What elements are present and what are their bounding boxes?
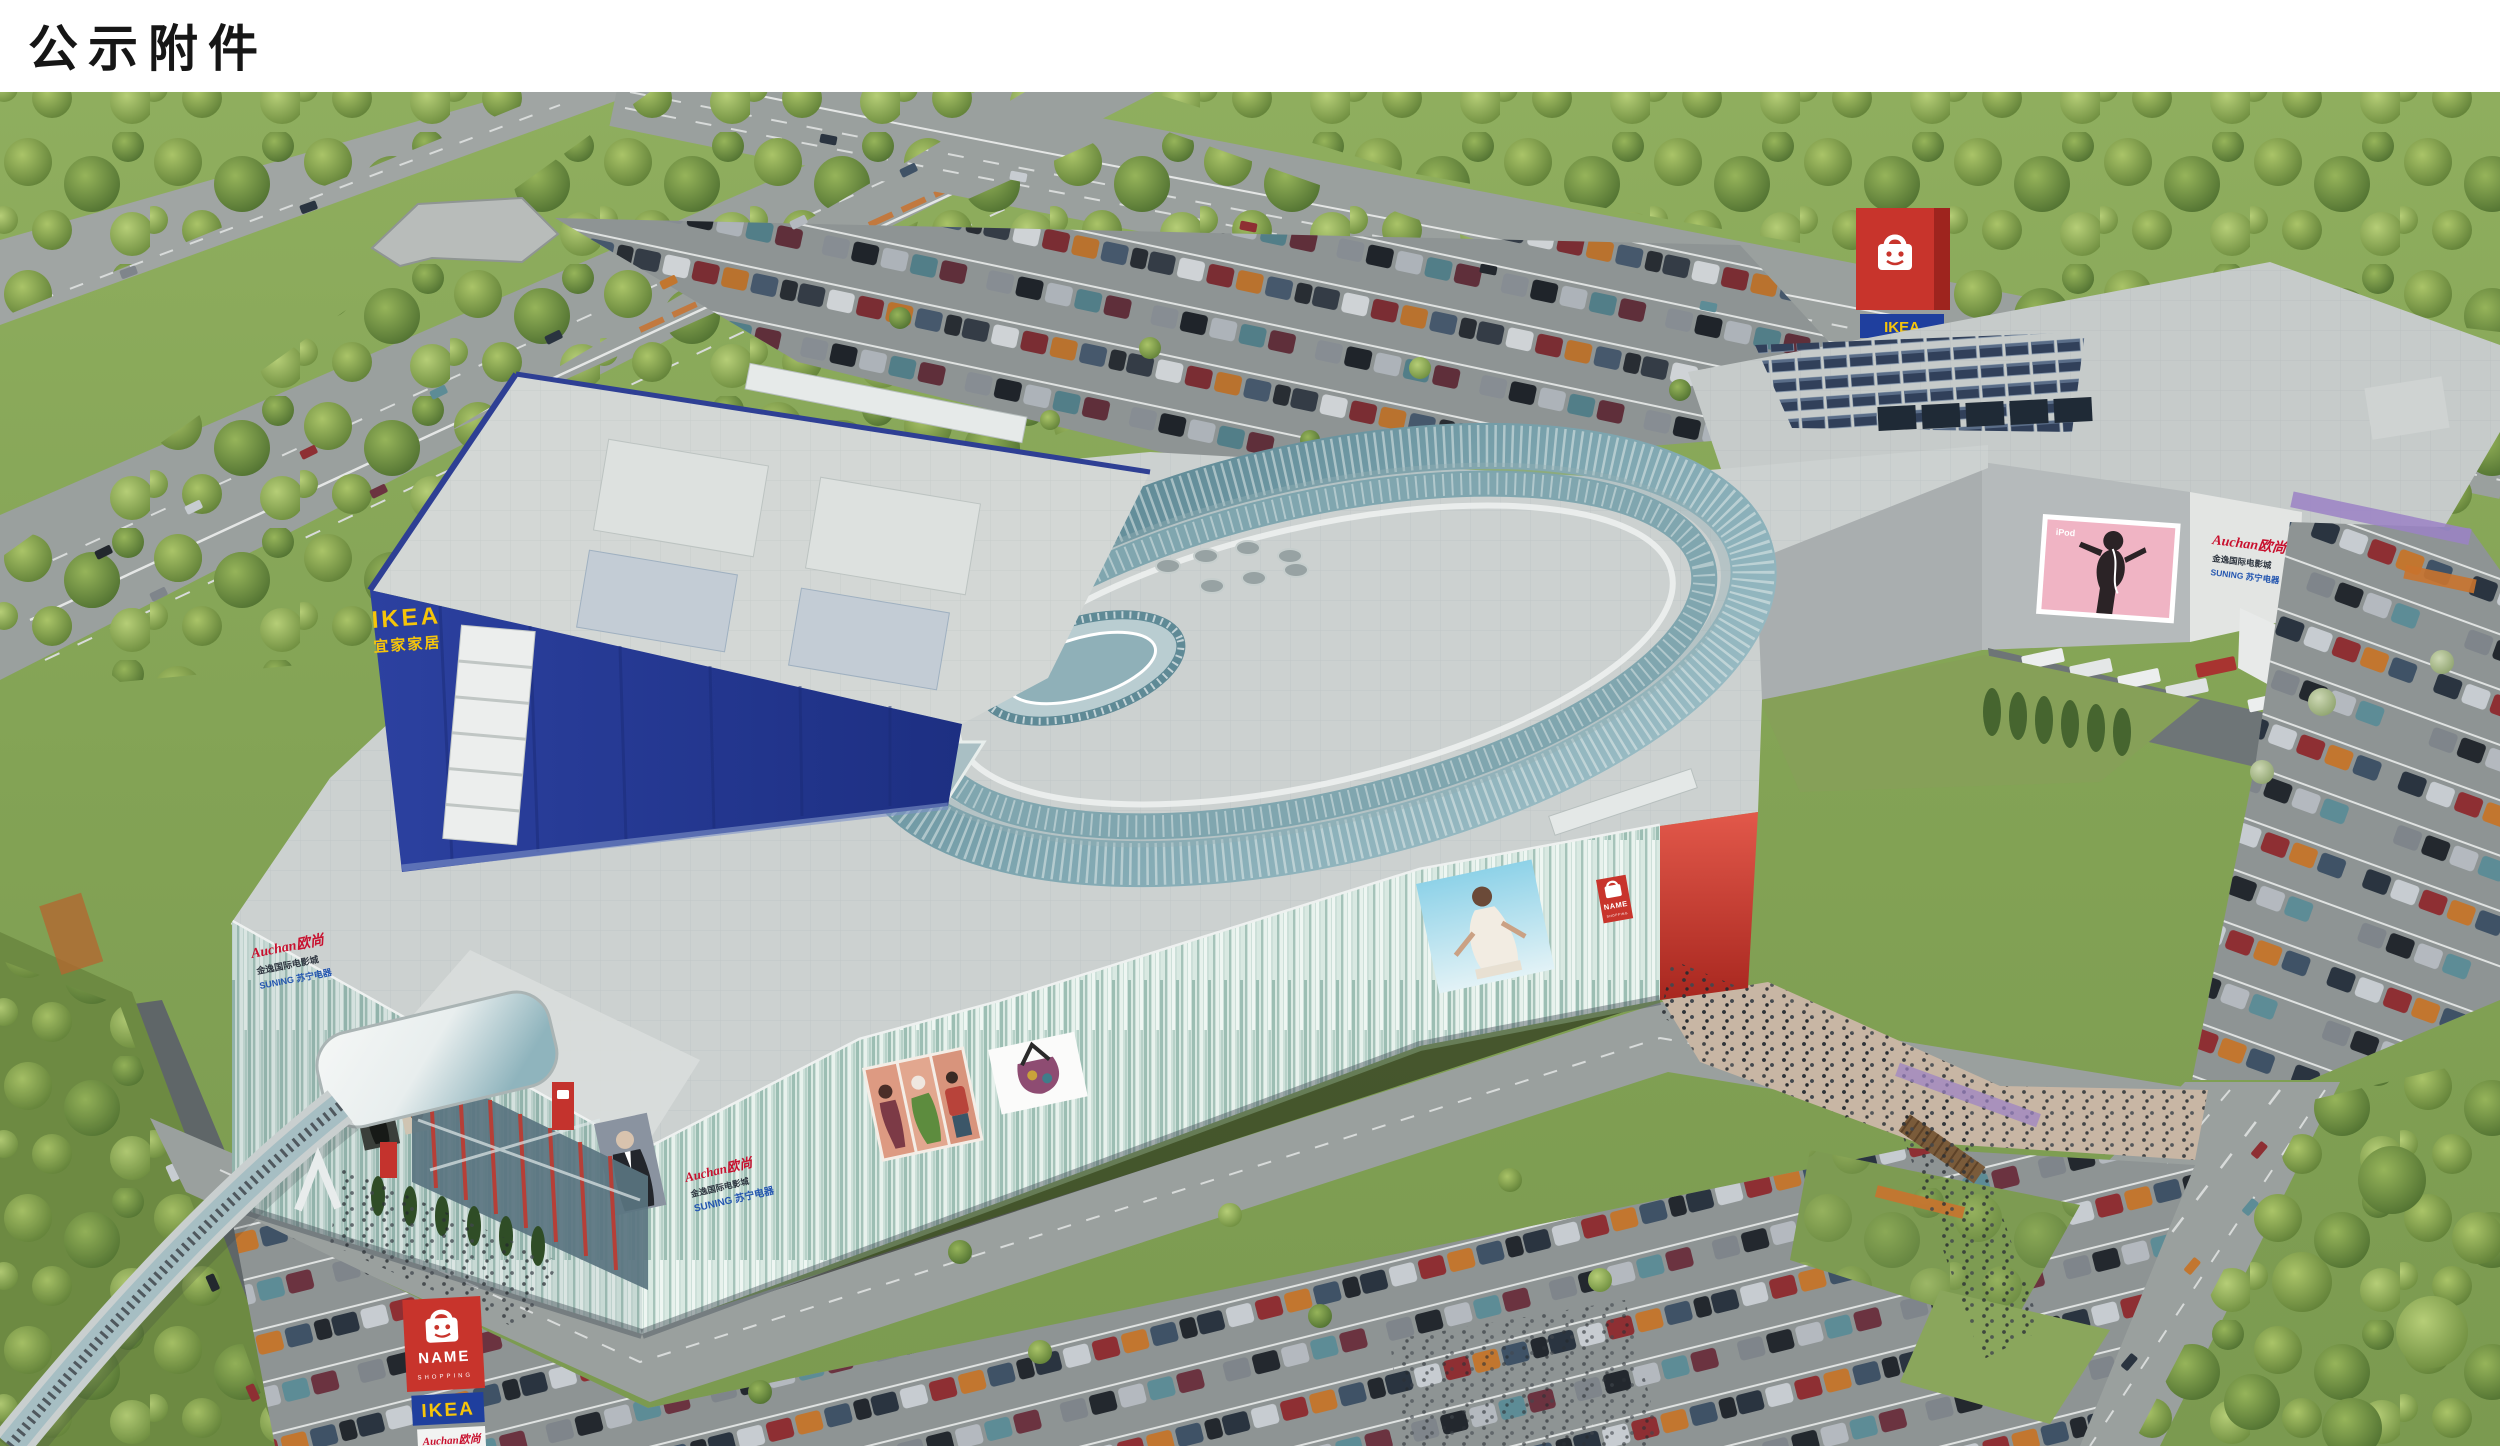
entrance-red-banner bbox=[380, 1142, 397, 1178]
ipod-label: iPod bbox=[2055, 527, 2075, 538]
aerial-rendering: IKEA Auchan欧尚 金逸国际电影城 苏宁电器 iPod Auchan欧尚… bbox=[0, 0, 2500, 1446]
page-title: 公示附件 bbox=[28, 21, 268, 77]
ikea-sign-en: IKEA bbox=[371, 602, 442, 634]
entrance-logo-banner bbox=[552, 1082, 574, 1130]
billboard-fashion-model bbox=[1416, 859, 1555, 993]
header-bar: 公示附件 bbox=[0, 0, 2500, 92]
billboard-ipod: iPod bbox=[2036, 514, 2181, 623]
south-pylon-ikea: IKEA bbox=[421, 1399, 475, 1423]
ikea-sign: IKEA 宜家家居 bbox=[371, 602, 444, 656]
notice-attachment-page: IKEA Auchan欧尚 金逸国际电影城 苏宁电器 iPod Auchan欧尚… bbox=[0, 0, 2500, 1446]
south-pylon-name: NAME bbox=[418, 1348, 471, 1368]
